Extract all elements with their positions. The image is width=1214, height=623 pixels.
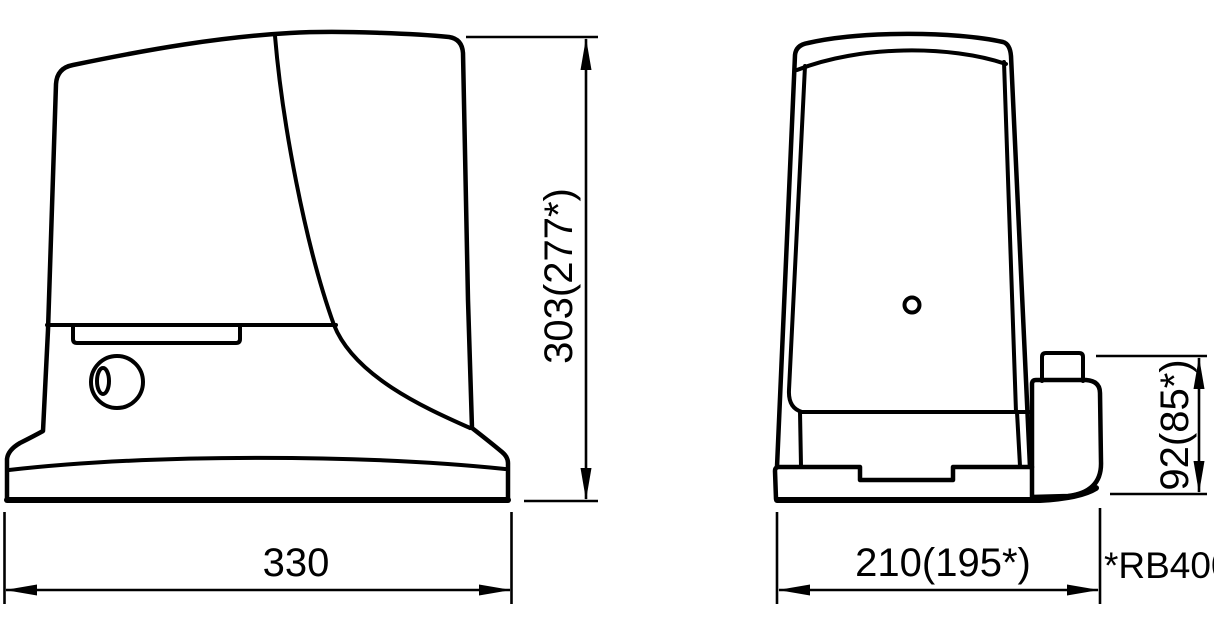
model-variant-note: *RB400 <box>1104 545 1214 586</box>
front-view <box>775 34 1101 500</box>
dim-92-label: 92(85*) <box>1153 359 1197 490</box>
side-keyhole-ellipse <box>97 368 109 394</box>
dim-330-arrow-right <box>479 585 511 596</box>
dim-330-label: 330 <box>263 541 330 585</box>
front-base-plate <box>775 467 1032 499</box>
dim-210-label: 210(195*) <box>855 541 1031 585</box>
front-lower-right-line <box>1017 412 1020 466</box>
technical-drawing-page: 303(277*) 330 92(85*) 210(195 <box>0 0 1214 623</box>
front-release-knob <box>1042 353 1083 381</box>
front-gearbox-housing <box>1032 380 1101 497</box>
dim-303-label: 303(277*) <box>537 188 581 364</box>
dimension-drawing-canvas: 303(277*) 330 92(85*) 210(195 <box>0 0 1214 623</box>
dim-210-arrow-right <box>1067 585 1099 596</box>
front-body-outline <box>777 34 1030 467</box>
dimension-height-motor-block: 92(85*) <box>1096 356 1207 494</box>
front-inner-top-arc <box>797 50 1006 70</box>
side-cover-seam-curve <box>275 36 470 428</box>
dim-330-arrow-left <box>5 585 37 596</box>
side-skirt-top-arc <box>9 458 505 470</box>
dimension-height-side: 303(277*) <box>466 37 598 501</box>
front-screw-hole <box>905 298 920 313</box>
dim-303-arrow-up <box>581 38 592 70</box>
dimension-width-front: 210(195*) <box>777 508 1100 604</box>
side-view <box>7 32 508 500</box>
front-lower-left-line <box>800 412 801 466</box>
dimension-width-side: 330 <box>5 512 512 604</box>
side-release-slot <box>73 326 240 343</box>
dim-210-arrow-left <box>778 585 810 596</box>
side-body-outline <box>7 32 508 499</box>
dim-303-arrow-down <box>581 468 592 500</box>
